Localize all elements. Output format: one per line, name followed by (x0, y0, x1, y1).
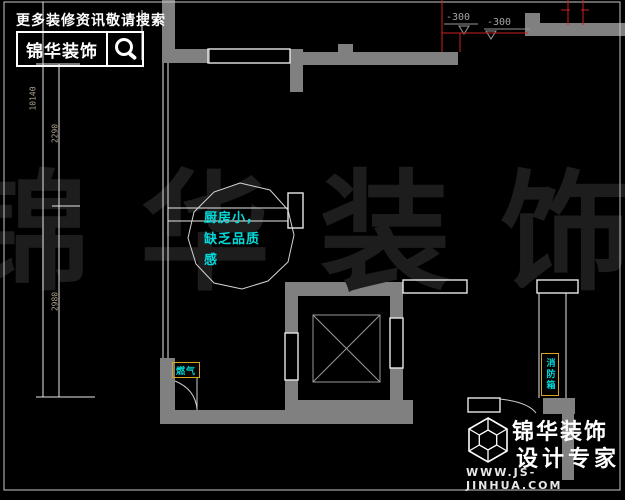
dimension-label-total: 10140 (29, 79, 38, 119)
door-frame (468, 398, 500, 412)
elevation-label: -300 (487, 17, 511, 28)
dimension-label-upper: 2290 (51, 114, 60, 154)
shaft-right-opening (390, 318, 403, 368)
kitchen-note: 厨房小， 缺乏品质 感 (204, 208, 268, 271)
footer-website: WWW.JS-JINHUA.COM (466, 466, 625, 492)
fire-hydrant-label: 消防箱 (541, 353, 559, 396)
wall-column (288, 193, 303, 228)
window-opening (208, 49, 290, 63)
cube-logo-icon (464, 416, 512, 464)
elevator-symbol (313, 315, 380, 382)
search-icon (108, 33, 142, 65)
elevation-triangle-icon (486, 31, 496, 39)
promo-text: 更多装修资讯敬请搜索 (16, 10, 166, 30)
gas-meter-label: 燃气 (172, 362, 200, 378)
floorplan-drawing: 锦华装饰 (0, 0, 625, 500)
brand-search-logo: 锦华装饰 (16, 31, 144, 67)
brand-name: 锦华装饰 (18, 33, 106, 65)
shaft-left-opening (285, 333, 298, 380)
corridor-wall-a (403, 280, 467, 293)
right-door-arc (500, 399, 536, 413)
door-window-openings (285, 280, 578, 412)
elevation-label: -300 (446, 12, 470, 23)
dimension-label-lower: 2980 (51, 282, 60, 322)
gas-door-arc (175, 381, 197, 409)
door-swing-arcs (175, 378, 536, 413)
corridor-wall-b (537, 280, 578, 293)
